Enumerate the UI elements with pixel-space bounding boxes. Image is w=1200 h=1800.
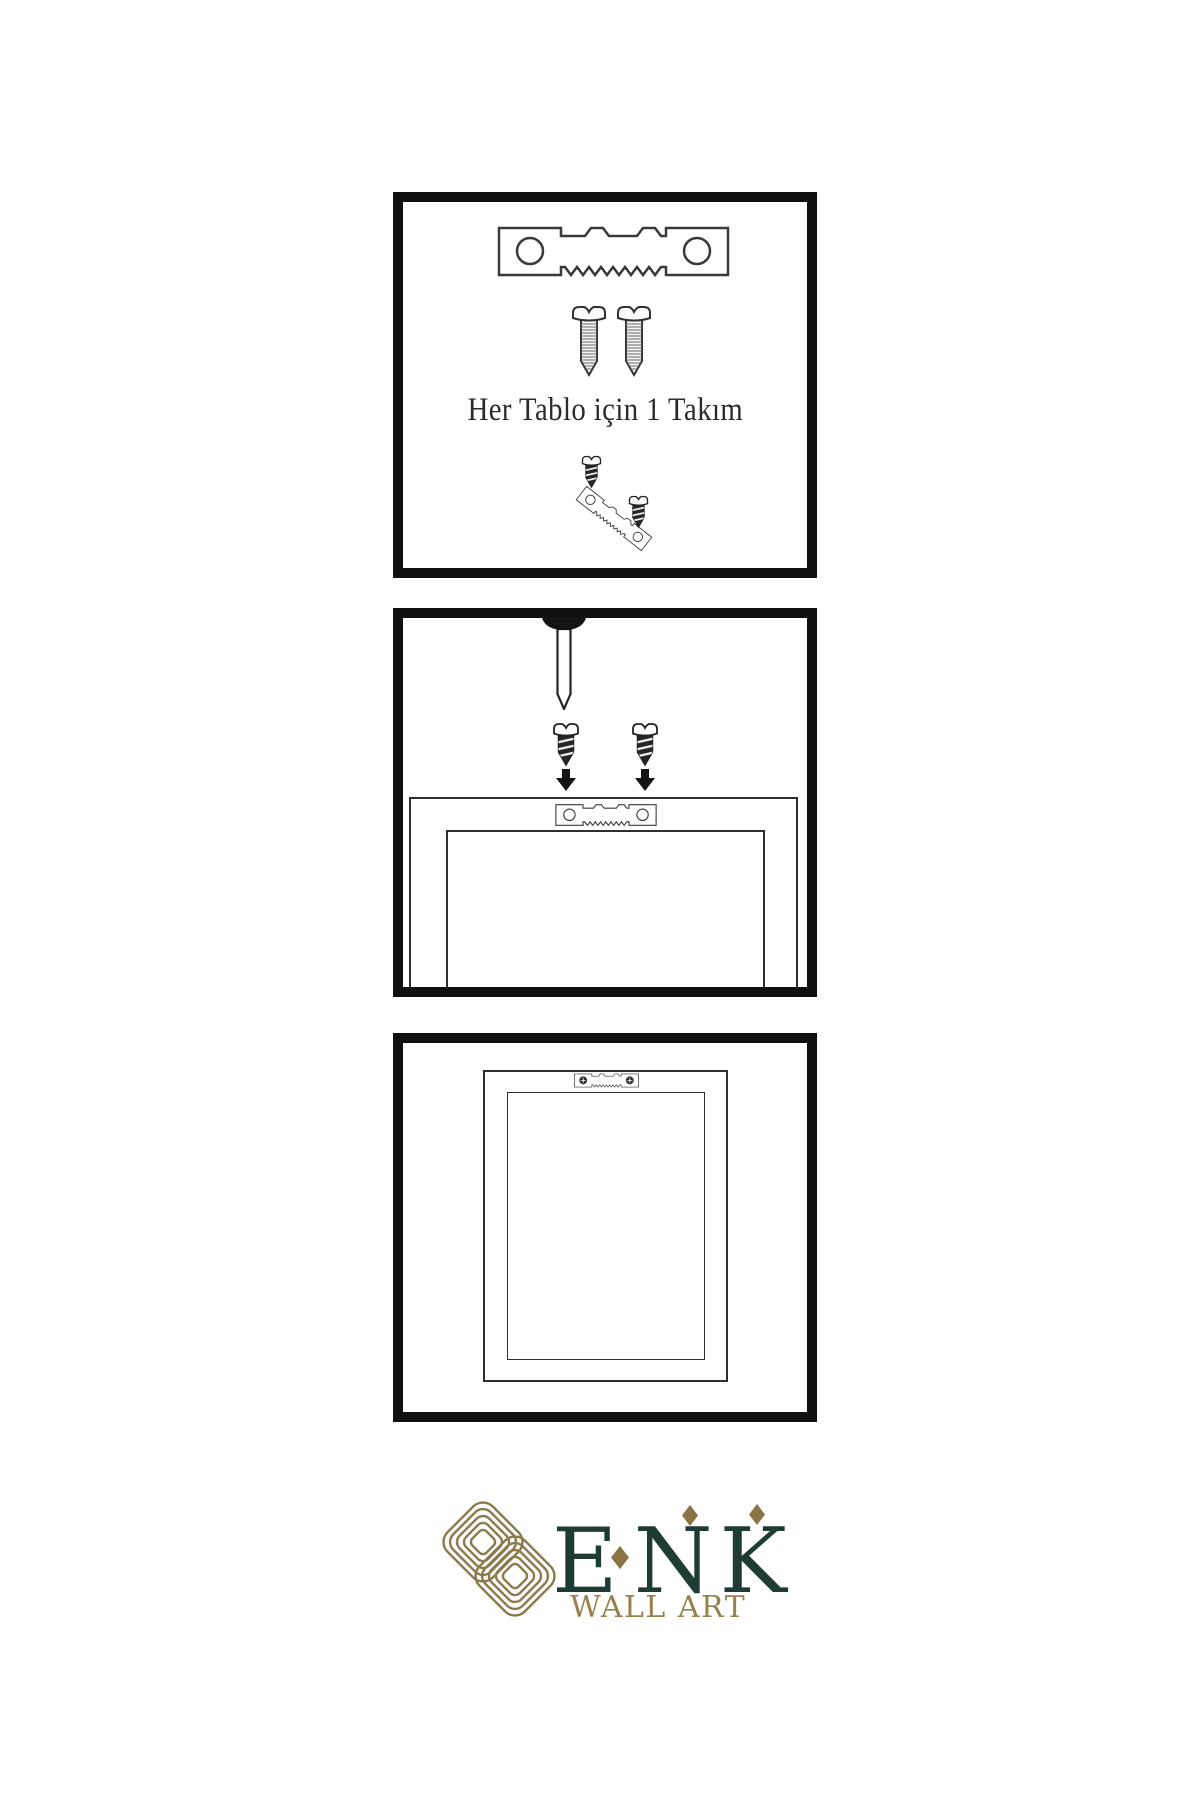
sawtooth-hanger-icon	[555, 802, 657, 828]
screw-icon	[616, 304, 652, 384]
down-arrow-icon	[555, 769, 577, 792]
screw-down-icon	[628, 494, 649, 529]
step3-panel	[393, 1033, 817, 1422]
screw-into-hanger-assembly	[540, 448, 670, 558]
down-arrow-icon	[634, 769, 656, 792]
screw-icon	[571, 304, 607, 384]
interlocking-knot-icon	[437, 1490, 561, 1628]
screw-down-icon	[631, 721, 659, 767]
sawtooth-hanger-icon	[497, 223, 730, 280]
step2-panel	[393, 608, 817, 997]
screw-down-icon	[581, 454, 602, 489]
step1-caption: Her Tablo için 1 Takım	[403, 394, 807, 427]
step1-panel: Her Tablo için 1 Takım	[393, 192, 817, 578]
frame-back-inner-edge	[446, 830, 765, 987]
screw-down-icon	[552, 721, 580, 767]
frame-back-inner-edge	[507, 1092, 705, 1360]
wall-nail-icon	[541, 618, 587, 722]
mounted-sawtooth-hanger-icon	[574, 1072, 639, 1089]
instruction-sheet: Her Tablo için 1 Takım	[0, 0, 1200, 1800]
brand-tagline: WALL ART	[570, 1593, 746, 1623]
